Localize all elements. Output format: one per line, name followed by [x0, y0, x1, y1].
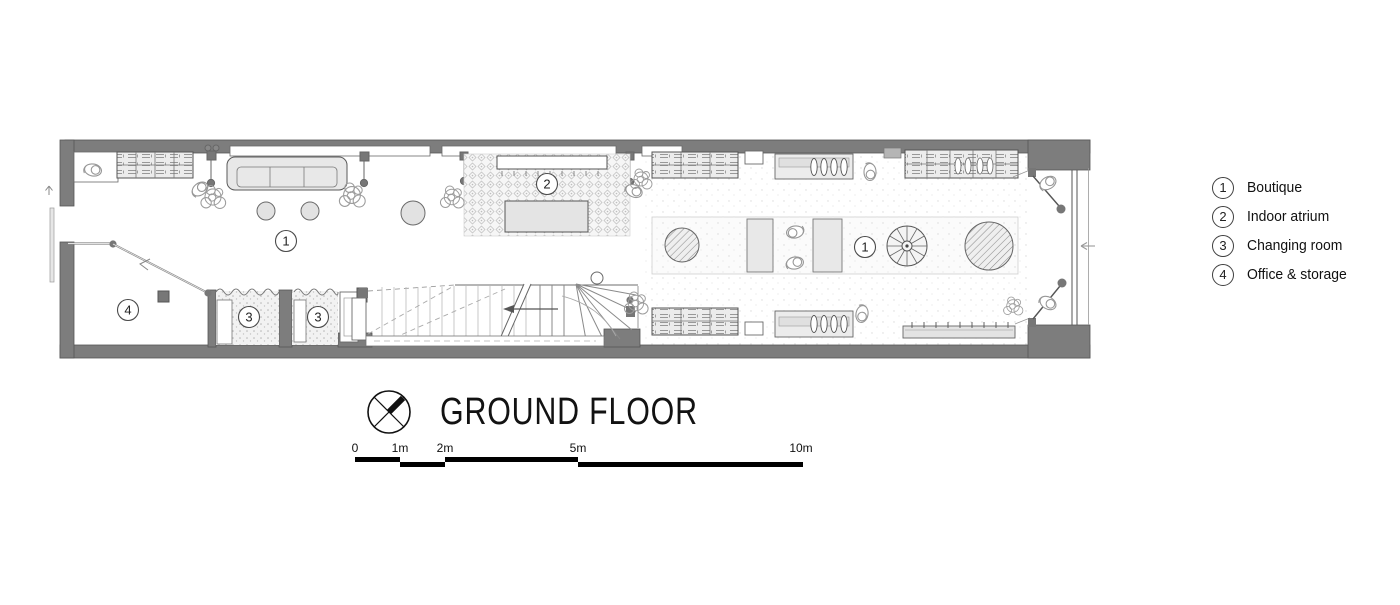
wall-changing-mid — [279, 290, 292, 347]
display-table-2 — [813, 219, 842, 272]
scale-segment-1-2m — [400, 462, 445, 467]
north-arrow-icon — [366, 389, 412, 435]
display-island — [652, 217, 1018, 274]
shelf-unit-left — [117, 152, 193, 178]
scale-tick-1m: 1m — [392, 441, 409, 455]
legend-item-office-storage: 4 Office & storage — [1212, 260, 1354, 289]
legend-number-1: 1 — [1212, 177, 1234, 199]
room-label-indoor-atrium: 2 — [543, 177, 550, 192]
room-label-boutique-left: 1 — [282, 234, 289, 249]
door-handle-top — [1057, 205, 1066, 214]
exterior-arrow — [46, 186, 53, 195]
signage-strip — [50, 208, 54, 282]
drawing-sheet: 1 2 3 3 4 1 GROUND FLOOR 0 1m 2m 5m 10m — [0, 0, 1400, 605]
atrium-bench — [497, 156, 607, 169]
hanging-rack-bottom — [775, 311, 853, 337]
scale-tick-10m: 10m — [789, 441, 812, 455]
scale-tick-2m: 2m — [437, 441, 454, 455]
floor-plan: 1 2 3 3 4 1 — [0, 0, 1400, 605]
staircase — [352, 272, 638, 346]
entry-arrow — [1081, 243, 1095, 250]
wall-vestibule-bottom — [1028, 325, 1090, 358]
hanging-rack-top — [775, 154, 853, 179]
wall-box-bottom — [745, 322, 763, 335]
stair-newel — [591, 272, 603, 284]
display-table-1 — [747, 219, 773, 272]
shelf-unit-top-mid — [652, 152, 738, 178]
scale-bar: 0 1m 2m 5m 10m — [352, 441, 812, 471]
legend-number-2: 2 — [1212, 206, 1234, 228]
wall-box-top — [745, 151, 763, 164]
legend-item-changing-room: 3 Changing room — [1212, 231, 1354, 260]
shelf-unit-bottom — [652, 308, 738, 335]
round-table-large — [965, 222, 1013, 270]
legend-item-indoor-atrium: 2 Indoor atrium — [1212, 202, 1354, 231]
door-handle-bottom — [1058, 279, 1067, 288]
sofa — [227, 157, 347, 190]
column — [158, 291, 169, 302]
entrance-vestibule — [1028, 168, 1095, 327]
pouf-2 — [301, 202, 319, 220]
legend-item-boutique: 1 Boutique — [1212, 173, 1354, 202]
room-label-boutique-right: 1 — [861, 240, 868, 255]
wall-left-lower — [60, 242, 74, 358]
room-label-changing-2: 3 — [314, 310, 321, 325]
page-title: GROUND FLOOR — [440, 391, 698, 434]
wall-changing-left — [208, 290, 216, 347]
legend-label-1: Boutique — [1247, 179, 1302, 196]
round-table-small — [665, 228, 699, 262]
room-label-office: 4 — [124, 303, 131, 318]
door-hinge-bottom — [1028, 318, 1036, 327]
door-hinge-top — [1028, 168, 1036, 177]
scale-tick-5m: 5m — [570, 441, 587, 455]
atrium-table — [505, 201, 588, 232]
pouf-3 — [401, 201, 425, 225]
legend: 1 Boutique 2 Indoor atrium 3 Changing ro… — [1212, 173, 1354, 289]
pouf-1 — [257, 202, 275, 220]
spiral-rack — [887, 226, 927, 266]
legend-number-4: 4 — [1212, 264, 1234, 286]
shelf-unit-top-right — [905, 150, 1018, 178]
wall-left-upper — [60, 140, 74, 206]
changing-bench-2 — [294, 300, 306, 342]
changing-bench-1 — [217, 300, 232, 344]
scale-segment-5-10m — [578, 462, 803, 467]
title-block: GROUND FLOOR — [366, 389, 762, 435]
legend-number-3: 3 — [1212, 235, 1234, 257]
scale-tick-0: 0 — [352, 441, 359, 455]
legend-label-4: Office & storage — [1247, 266, 1347, 283]
legend-label-2: Indoor atrium — [1247, 208, 1329, 225]
scale-segment-0-1m — [355, 457, 400, 462]
exterior-left — [46, 186, 55, 282]
room-label-changing-1: 3 — [245, 310, 252, 325]
office-storage — [68, 240, 212, 302]
wall-box-gray — [884, 148, 901, 158]
stair-direction-arrow — [503, 305, 514, 313]
scale-segment-2-5m — [445, 457, 578, 462]
wall-threshold-right — [604, 329, 640, 347]
wall-vestibule-top — [1028, 140, 1090, 170]
legend-label-3: Changing room — [1247, 237, 1342, 254]
